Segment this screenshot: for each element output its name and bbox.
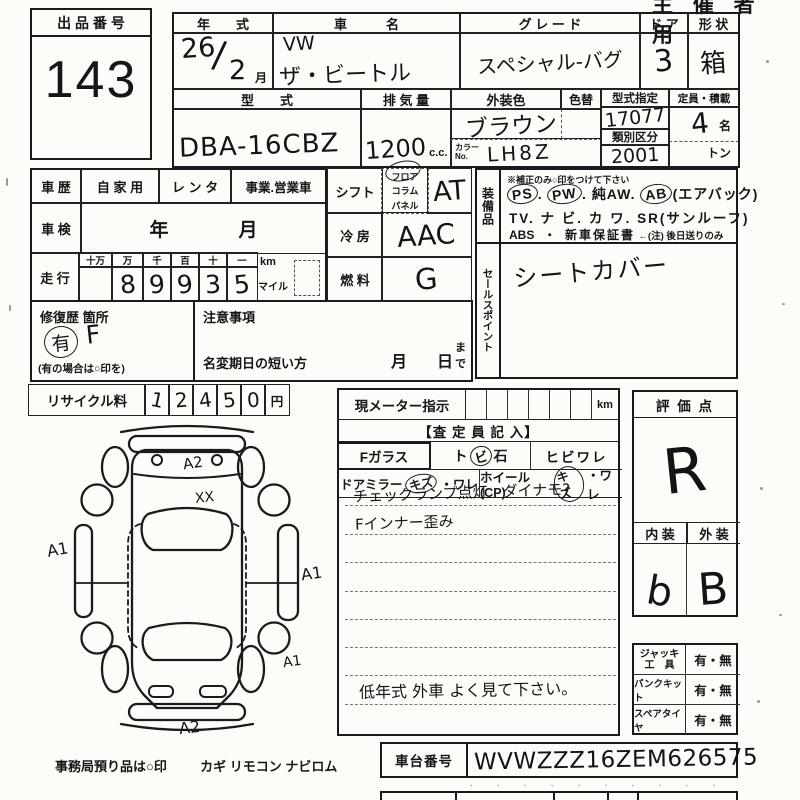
meter-digit-cell — [571, 390, 592, 420]
transfer-day: 日 — [437, 348, 453, 372]
side-panel-right — [278, 525, 298, 620]
jack-tools-label: ジャッキ工 具 — [634, 645, 686, 675]
history-private: 自 家 用 — [80, 168, 160, 204]
equipment-box: 装備品 ※補正のみ○印をつけて下さい PS. PW. 純AW. AB(エアバック… — [475, 168, 738, 379]
windshield — [142, 508, 233, 550]
ditto-ticks: 、 、 、 、 、 、 、 、 、 、 — [470, 779, 729, 789]
class-cell: 2001 — [600, 144, 670, 168]
damage-mark-right-rear: A1 — [282, 653, 303, 671]
front-arc — [121, 426, 253, 432]
meter-digit-cell — [550, 390, 571, 420]
shift-option-panel: パネル — [391, 199, 418, 212]
inspection-year-unit: 年 — [149, 215, 168, 242]
inspection-cell: 年 月 — [80, 202, 327, 254]
meter-km-unit: km — [592, 390, 618, 420]
mileage-digit: 9 — [170, 266, 200, 302]
rear-window — [143, 623, 232, 660]
assessor-panel: 現メーター指示 km 【査 定 員 記 入】 Fガラス ト ビ 石 ヒビワレ ド… — [337, 388, 620, 736]
mileage-digit: 3 — [198, 266, 228, 302]
year-header: 年 式 — [172, 12, 274, 34]
color-no-label: カラー No. — [455, 144, 479, 162]
inspection-month-unit: 月 — [239, 215, 258, 242]
repaint-divider — [561, 109, 562, 139]
equipment-vertical-label: 装備品 — [477, 170, 501, 242]
equipment-line2: TV. ナ ビ. カ ワ. SR(サンルーフ) — [509, 207, 750, 227]
recycle-header: リサイクル料 — [28, 384, 146, 416]
displacement-unit: c.c. — [429, 147, 447, 159]
score-value-cell: R — [634, 418, 736, 522]
color-no-value: LH8Z — [486, 139, 552, 166]
model-code-cell: DBA-16CBZ — [172, 108, 362, 168]
meter-digit-cell — [529, 390, 550, 420]
scan-noise-dot — [9, 305, 11, 311]
capacity-cell: 4 名 トン — [668, 106, 740, 168]
score-box: 評 価 点 R 内 装 外 装 b B — [632, 390, 738, 617]
repair-note: (有の場合は○印を) — [38, 361, 125, 376]
mileage-digit: 9 — [142, 266, 172, 302]
history-rental: レ ン タ — [158, 168, 232, 204]
repair-mark: F — [85, 319, 102, 349]
scan-noise-dot — [779, 614, 782, 616]
interior-header: 内 装 — [634, 522, 687, 544]
month-unit: 月 — [255, 69, 267, 86]
assessor-entry-header: 【査 定 員 記 入】 — [339, 420, 618, 442]
recycle-digit: 4 — [192, 384, 218, 416]
vin-value: WVWZZZ16ZEM626575 — [474, 745, 759, 776]
recycle-digit: 2 — [168, 384, 194, 416]
displacement-header: 排 気 量 — [360, 88, 452, 110]
ac-value: AAC — [396, 217, 456, 254]
mile-checkbox — [294, 260, 320, 296]
capacity-header: 定員・積載 — [668, 88, 740, 108]
wheel-front-right — [259, 485, 290, 516]
damage-mark-windshield: XX — [194, 489, 215, 507]
load-unit: トン — [707, 144, 731, 161]
mileage-digit: 8 — [111, 266, 144, 302]
scan-noise-dot — [782, 303, 785, 305]
jack-tools-value: 有・無 — [686, 645, 740, 675]
lot-header: 出 品 番 号 — [32, 10, 150, 37]
meter-digit-cell — [508, 390, 529, 420]
vin-box: 車台番号 WVWZZZ16ZEM626575 — [380, 742, 738, 778]
inspection-header: 車 検 — [30, 202, 82, 254]
auction-sheet: 主 催 者 用 出 品 番 号 143 年 式 車 名 グ レ ー ド ド ア … — [0, 0, 800, 800]
type-designation-cell: 17077 — [600, 106, 670, 130]
pw-circled: PW — [546, 182, 583, 206]
mileage-digit: 5 — [226, 266, 258, 302]
exterior-score: B — [697, 563, 731, 616]
sales-point-value: シートカバー — [512, 245, 670, 293]
maker-value: VW — [282, 32, 315, 56]
accessories-box: ジャッキ工 具 有・無 パンクキット 有・無 スペアタイヤ 有・無 — [632, 643, 738, 735]
scan-noise-dot — [757, 700, 760, 703]
door-line-right — [234, 524, 246, 649]
hood-line — [134, 474, 240, 478]
transfer-made: まで — [455, 339, 471, 371]
damage-mark-rear: A2 — [178, 717, 201, 738]
alloy-wheel-label: 純AW. — [592, 186, 636, 202]
spare-tire-value: 有・無 — [686, 705, 740, 734]
wheel-front-left — [82, 485, 113, 516]
vin-label: 車台番号 — [382, 744, 468, 776]
name-header: 車 名 — [272, 12, 461, 34]
exterior-header: 外 装 — [687, 522, 740, 544]
exterior-score-cell: B — [687, 544, 740, 617]
scan-noise-dot — [766, 60, 769, 63]
shift-value: AT — [432, 174, 467, 207]
stone-chip-circled: ビ — [467, 443, 493, 468]
km-unit: km — [260, 256, 276, 268]
grade-cell: スペシャル-バグ — [459, 32, 641, 90]
mile-unit: マイル — [258, 278, 288, 293]
damage-mark-right: A1 — [300, 563, 324, 585]
recycle-yen-unit: 円 — [264, 384, 290, 416]
side-panel-left — [75, 525, 92, 617]
office-note: 事務局預り品は○印 カギ リモコン ナビロム — [55, 756, 337, 775]
grade-value: スペシャル-バグ — [476, 43, 623, 80]
headlight-left — [152, 455, 162, 465]
fuel-value: G — [414, 261, 439, 297]
transfer-deadline-label: 名変期日の短い方 — [203, 353, 307, 372]
door-value: 3 — [653, 43, 675, 80]
shape-cell: 箱 — [687, 32, 740, 90]
history-header: 車 歴 — [30, 168, 82, 204]
transfer-month: 月 — [391, 348, 407, 372]
office-items: カギ リモコン ナビロム — [200, 759, 337, 774]
repair-box: 修復歴 箇所 有 F (有の場合は○印を) — [30, 300, 195, 382]
repair-yes-circled: 有 — [42, 324, 80, 360]
repaint-header: 色替 — [560, 88, 602, 110]
year-value: 26 — [180, 32, 216, 65]
equipment-line1: PS. PW. 純AW. AB(エアバック) — [507, 184, 758, 204]
current-meter-label: 現メーター指示 — [339, 390, 466, 420]
puncture-kit-value: 有・無 — [686, 675, 740, 705]
shift-option-column: コラム — [392, 184, 419, 197]
meter-digit-cell — [487, 390, 508, 420]
assessor-note-3: 低年式 外車 よく見て下さい。 — [359, 675, 578, 703]
recycle-digit: 5 — [216, 384, 242, 416]
front-glass-label: Fガラス — [339, 442, 431, 470]
fender-rear-left — [102, 646, 128, 692]
door-line-left — [128, 524, 140, 649]
cutoff-row-line — [380, 791, 738, 793]
lot-number: 143 — [32, 50, 150, 110]
displacement-cell: 1200 c.c. — [360, 108, 452, 168]
model-name-value: ザ・ビートル — [278, 55, 411, 92]
lot-box: 出 品 番 号 143 — [30, 8, 152, 160]
model-code-header: 型 式 — [172, 88, 362, 110]
caution-header: 注意事項 — [203, 307, 255, 326]
history-commercial: 事業.営業車 — [230, 168, 327, 204]
score-header: 評 価 点 — [634, 392, 736, 418]
door-header: ド ア — [639, 12, 689, 34]
sales-point-vertical-label: セールスポイント — [477, 242, 501, 377]
assessor-note-2: Fインナー歪み — [355, 510, 454, 534]
capacity-value: 4 — [689, 106, 710, 141]
spare-tire-label: スペアタイヤ — [634, 705, 686, 734]
shape-value: 箱 — [699, 42, 728, 81]
body-color-cell: ブラウン — [450, 108, 602, 140]
car-diagram: A2 XX A1 A1 A1 A2 — [45, 418, 340, 743]
body-outline — [132, 450, 242, 708]
equipment-line3: ABS ・ 新車保証書 ←(注) 後日送りのみ — [509, 226, 723, 243]
stone-chip-option: ト ビ 石 — [431, 442, 531, 470]
class-value: 2001 — [610, 144, 659, 169]
fuel-value-cell: G — [381, 256, 472, 302]
damage-mark-left: A1 — [46, 538, 70, 560]
shape-header: 形 状 — [687, 12, 740, 34]
mileage-header: 走 行 — [30, 252, 80, 302]
mileage-digit — [78, 266, 113, 302]
name-cell: VW ザ・ビートル — [272, 32, 461, 90]
meter-digit-cell — [466, 390, 487, 420]
shift-header: シフト — [327, 168, 383, 214]
airbag-circled: AB — [639, 182, 673, 206]
interior-score: b — [643, 567, 676, 617]
month-value: 2 — [229, 55, 246, 86]
recycle-digit: 1 — [144, 384, 170, 416]
taillight-right — [200, 686, 226, 697]
capacity-unit: 名 — [719, 117, 731, 134]
recycle-digit: 0 — [240, 384, 266, 416]
scan-noise-dot — [760, 487, 763, 490]
ps-circled: PS — [506, 182, 539, 206]
color-no-cell: カラー No. LH8Z — [450, 138, 602, 168]
scan-noise-dot — [6, 178, 8, 186]
fender-front-left — [102, 447, 128, 487]
fuel-header: 燃 料 — [327, 256, 383, 302]
displacement-value: 1200 — [364, 133, 427, 165]
headlight-right — [212, 455, 222, 465]
grade-header: グ レ ー ド — [459, 12, 641, 34]
year-cell: 26 / 2 月 — [172, 32, 274, 90]
wheel-rear-right — [259, 623, 290, 654]
damage-mark-front: A2 — [182, 453, 204, 474]
door-cell: 3 — [639, 32, 689, 90]
shift-value-cell: AT — [427, 168, 472, 214]
caution-box: 注意事項 名変期日の短い方 月 日 まで — [193, 300, 473, 382]
score-value: R — [660, 431, 710, 508]
interior-score-cell: b — [634, 544, 687, 617]
taillight-left — [149, 686, 173, 697]
ac-header: 冷 房 — [327, 212, 383, 258]
ac-value-cell: AAC — [381, 212, 472, 258]
model-code-value: DBA-16CBZ — [179, 128, 340, 164]
puncture-kit-label: パンクキット — [634, 675, 686, 705]
airbag-note: (エアバック) — [673, 186, 759, 202]
